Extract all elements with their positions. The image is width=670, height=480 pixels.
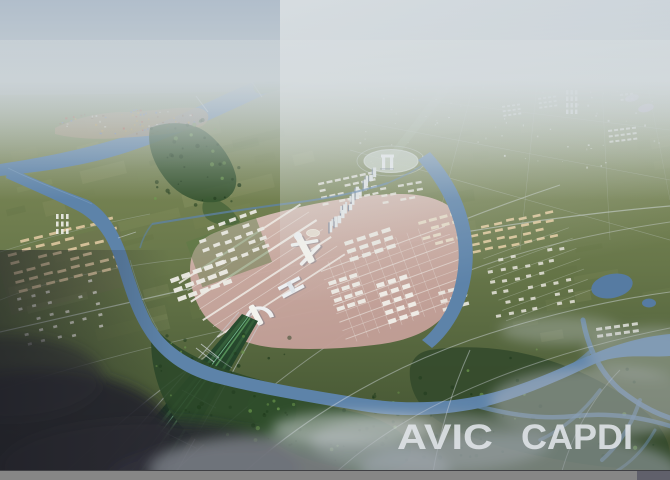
scrollbar-track[interactable]: [0, 471, 670, 480]
tree-clump: [266, 410, 269, 413]
tree-clump: [277, 407, 280, 410]
tree-clump: [263, 413, 267, 417]
building: [56, 222, 59, 227]
scrollbar-border: [0, 470, 670, 471]
tree-clump: [200, 402, 204, 406]
tree-clump: [183, 339, 186, 342]
tree-clump: [467, 369, 470, 372]
tree-clump: [170, 394, 172, 396]
tree-clump: [423, 392, 427, 396]
tree-clump: [232, 390, 236, 394]
tree-clump: [418, 376, 422, 380]
tree-clump: [509, 357, 512, 360]
tree-clump: [286, 414, 288, 416]
building: [56, 214, 59, 219]
tree-clump: [229, 406, 232, 409]
tree-clump: [292, 403, 295, 406]
building: [61, 214, 64, 219]
tree-clump: [267, 403, 270, 406]
watermark-word-1: AVIC: [397, 418, 493, 457]
tree-clump: [272, 399, 275, 402]
building: [61, 229, 64, 234]
tree-clump: [241, 351, 244, 354]
tree-clump: [536, 348, 538, 350]
tree-clump: [251, 423, 255, 427]
scrollbar-thumb[interactable]: [637, 471, 670, 480]
tree-clump: [372, 396, 374, 398]
tree-clump: [234, 352, 237, 355]
tree-clump: [256, 426, 260, 430]
tree-clump: [287, 336, 291, 340]
tree-clump: [284, 412, 286, 414]
building: [66, 214, 69, 219]
aerial-masterplan-rendering: AVIC CAPDI: [0, 0, 670, 480]
tree-clump: [197, 405, 201, 409]
tree-clump: [231, 372, 233, 374]
tree-clump: [470, 393, 472, 395]
tree-clump: [374, 393, 376, 395]
tree-clump: [397, 391, 399, 393]
tree-clump: [209, 362, 212, 365]
building: [61, 222, 64, 227]
tree-clump: [189, 411, 191, 413]
tree-clump: [283, 354, 285, 356]
tree-clump: [652, 444, 654, 446]
building: [66, 229, 69, 234]
tree-clump: [170, 342, 172, 344]
tree-clump: [253, 395, 256, 398]
tree-clump: [248, 409, 252, 413]
building: [56, 229, 59, 234]
tree-clump: [210, 414, 212, 416]
tree-clump: [267, 357, 270, 360]
watermark-word-2: CAPDI: [521, 418, 633, 457]
right-distance-haze: [280, 0, 670, 300]
tree-clump: [184, 409, 186, 411]
horizontal-scrollbar[interactable]: [0, 470, 670, 480]
tree-clump: [342, 409, 346, 413]
tree-clump: [194, 203, 198, 207]
left-vignette: [0, 250, 170, 480]
building: [66, 222, 69, 227]
tower-cluster: [56, 214, 69, 234]
rendering-canvas: AVIC CAPDI: [0, 0, 670, 480]
tree-clump: [230, 200, 232, 202]
tree-clump: [242, 335, 245, 338]
tree-clump: [451, 385, 455, 389]
tree-clump: [184, 346, 186, 348]
tree-clump: [237, 364, 241, 368]
